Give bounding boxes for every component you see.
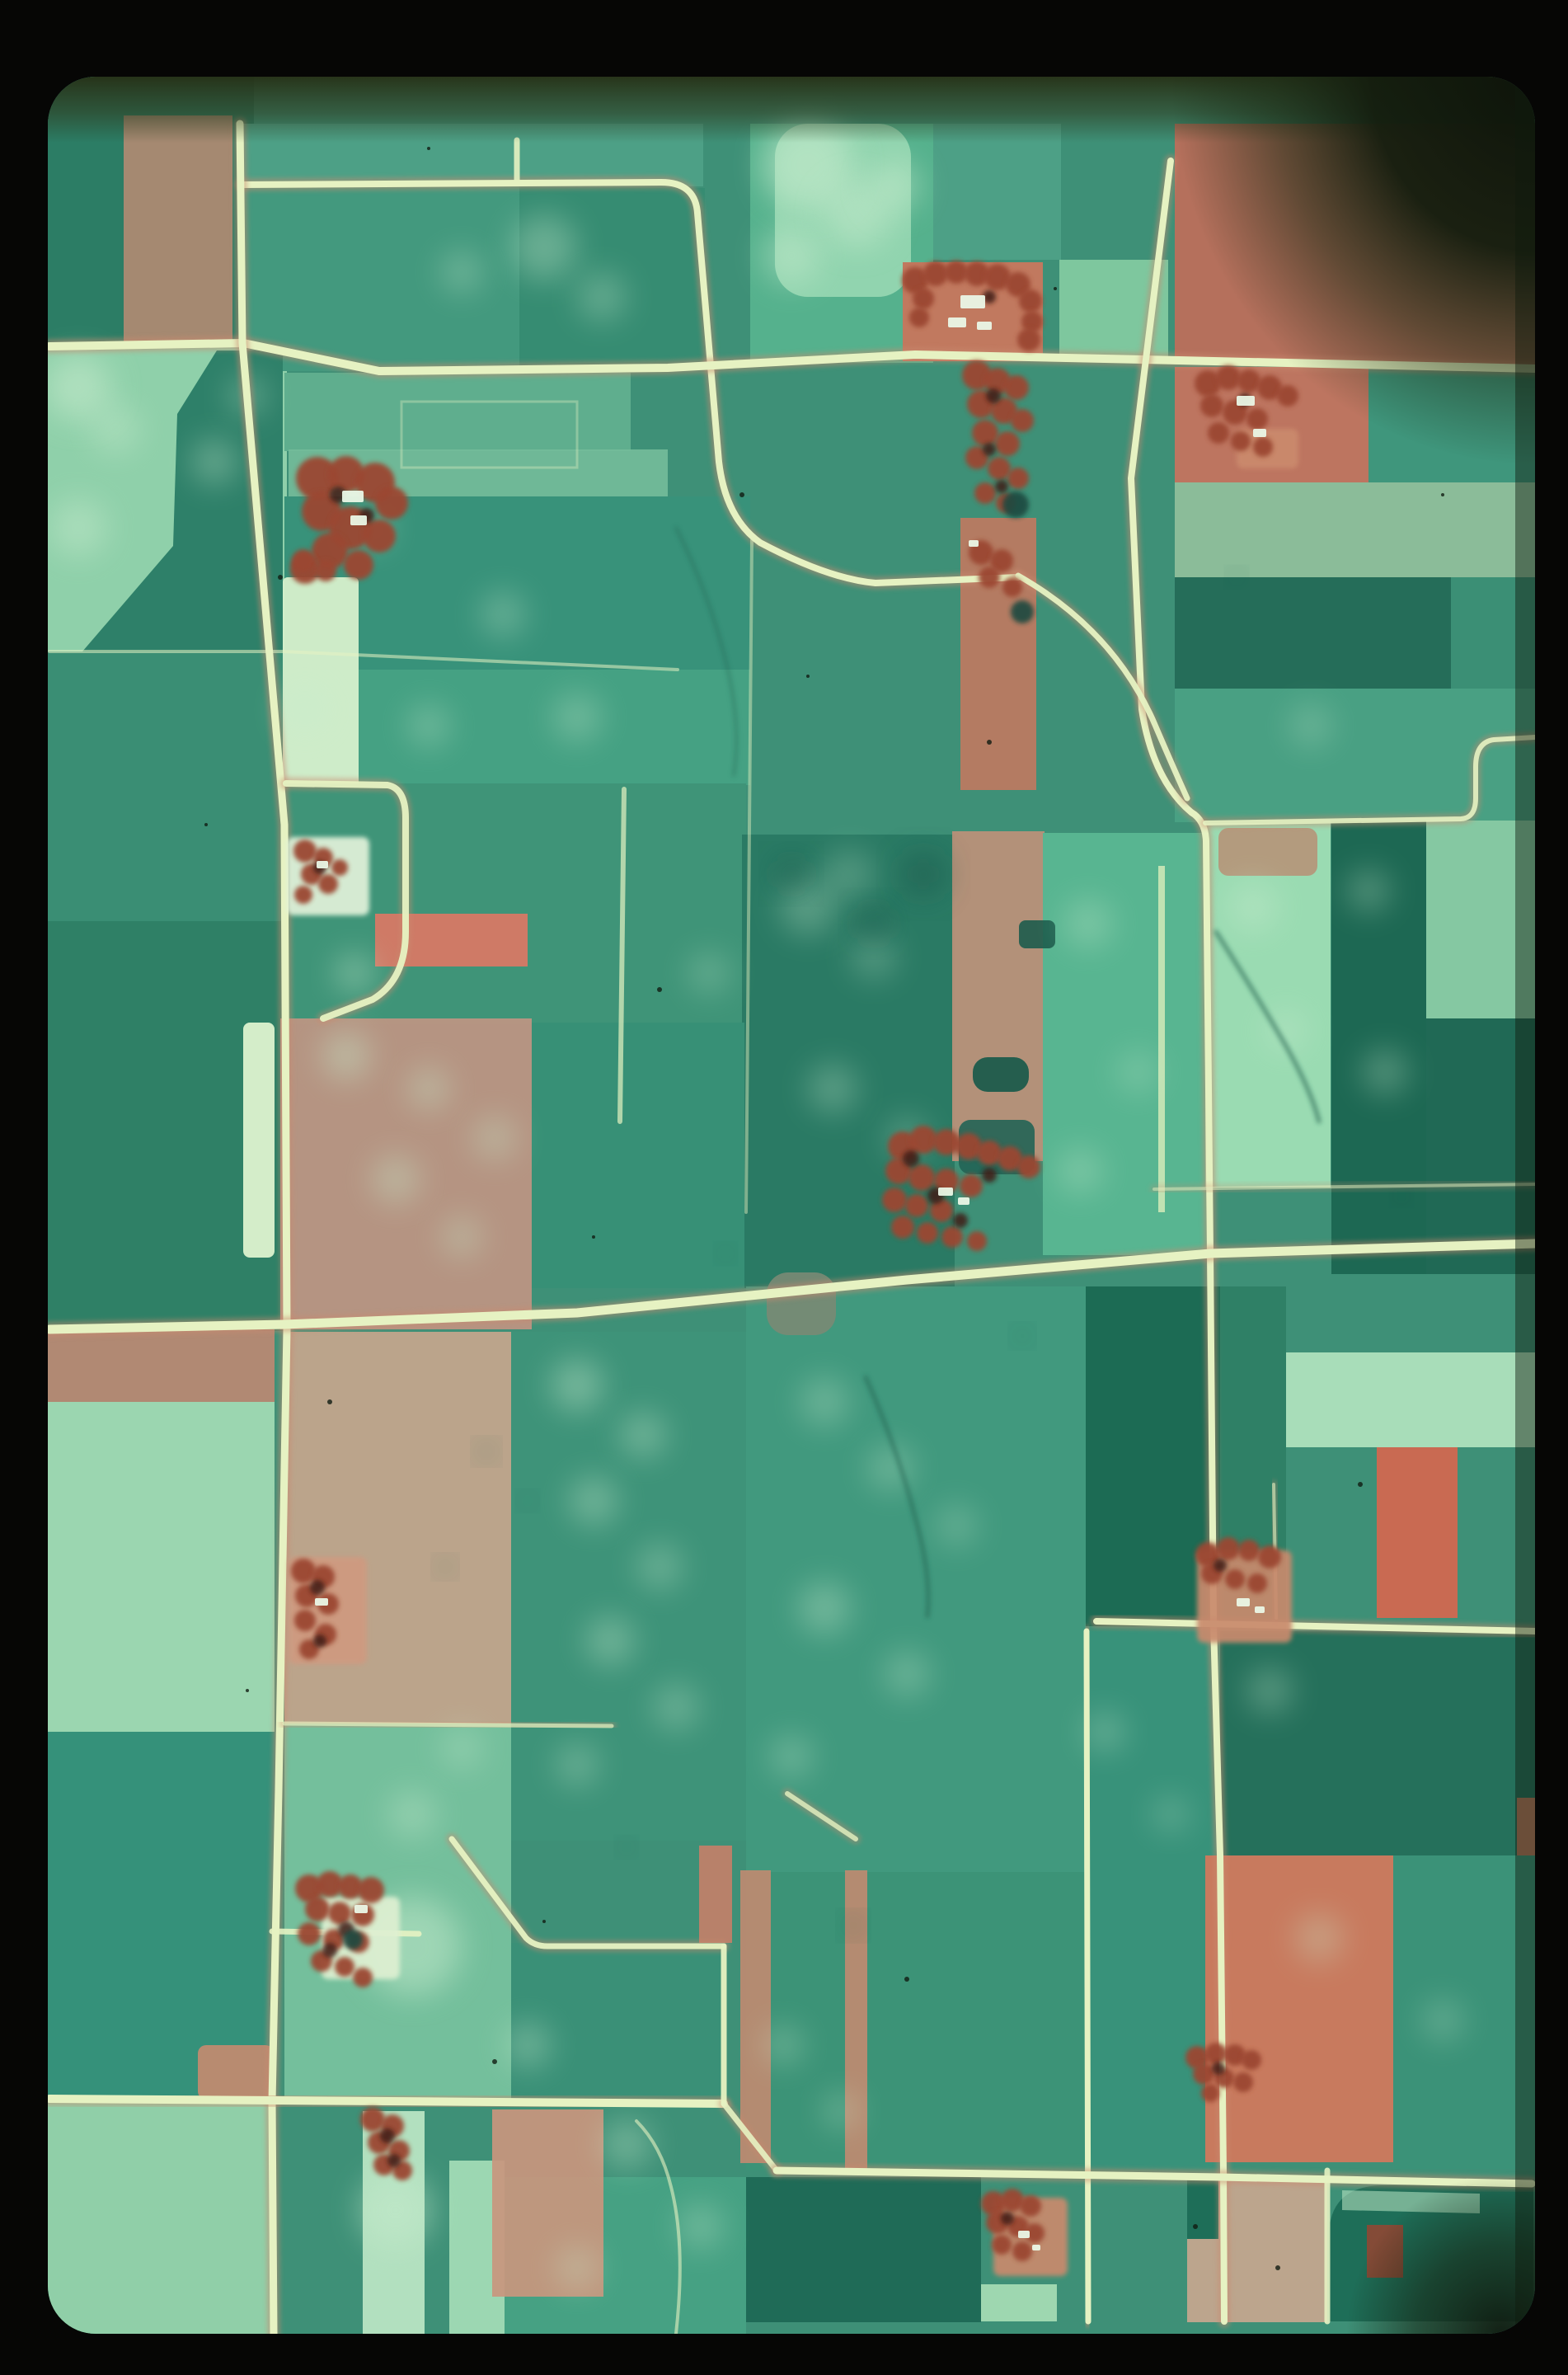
shelterbelt-trees (293, 839, 317, 863)
shelterbelt-trees (358, 1877, 384, 1903)
corner-vignette-bottom-right (1253, 2045, 1535, 2334)
tree-shadow (310, 1580, 325, 1595)
dark-soil-spot (621, 1841, 632, 1853)
light-soil-spot (1294, 1913, 1344, 1963)
dark-soil-spot (439, 1560, 452, 1573)
field-region (1205, 823, 1331, 1187)
dark-soil-spot (902, 853, 945, 896)
shelterbelt-trees (1201, 2084, 1219, 2102)
light-soil-spot (763, 227, 820, 285)
farm-building (1255, 1606, 1265, 1613)
tree-shadow (1214, 1559, 1227, 1572)
light-soil-spot (636, 1544, 683, 1590)
light-soil-spot (387, 1789, 437, 1839)
tree-shadow (982, 1168, 997, 1183)
farm-building (938, 1187, 953, 1196)
field-region (243, 1023, 275, 1258)
farm-building (317, 861, 328, 868)
tree-shadow (313, 1634, 326, 1648)
light-soil-spot (884, 1651, 930, 1697)
shelterbelt-trees (933, 1129, 960, 1155)
field-region (532, 1023, 744, 1288)
field-region (1218, 828, 1317, 876)
film-dust-speck (492, 2059, 497, 2064)
shelterbelt-trees (294, 886, 312, 904)
light-soil-spot (1362, 1049, 1408, 1095)
film-dust-speck (592, 1235, 595, 1239)
field-region (48, 1329, 275, 1408)
light-soil-spot (1421, 1999, 1464, 2042)
aerial-photo-slide (0, 0, 1568, 2375)
tree-shadow (953, 1213, 968, 1228)
film-dust-speck (904, 1977, 909, 1982)
shelterbelt-trees (1205, 2043, 1227, 2064)
field-region (1019, 920, 1055, 948)
dark-soil-spot (1396, 1190, 1407, 1202)
shelterbelt-trees (960, 1174, 983, 1197)
field-region (699, 1846, 732, 1943)
dark-soil-spot (845, 1917, 861, 1934)
farmstead-south-center (981, 2189, 1068, 2276)
light-soil-spot (191, 439, 237, 485)
shelterbelt-trees (909, 1126, 937, 1154)
shelterbelt-trees (331, 859, 348, 876)
light-soil-spot (91, 404, 140, 454)
light-soil-spot (505, 2022, 551, 2068)
farm-building (1032, 2245, 1040, 2250)
tree-shadow (387, 2154, 401, 2167)
shelterbelt-trees (318, 874, 338, 894)
light-soil-spot (688, 952, 730, 995)
shelterbelt-trees (913, 288, 934, 309)
road-segment (49, 2099, 724, 2104)
light-soil-spot (1246, 1667, 1293, 1714)
tree-shadow (903, 1150, 919, 1167)
farmstead-east (1195, 1537, 1292, 1643)
dark-soil-spot (479, 1444, 494, 1459)
field-region (746, 1286, 1086, 1874)
field-region (511, 1332, 746, 1841)
light-soil-spot (335, 953, 374, 993)
field-region (1158, 866, 1165, 1212)
film-dust-speck (278, 575, 283, 580)
field-region (198, 2045, 274, 2100)
field-region (1377, 1447, 1458, 1618)
film-dust-speck (987, 740, 992, 745)
light-soil-spot (440, 1727, 483, 1770)
light-soil-spot (1063, 899, 1113, 948)
light-soil-spot (407, 704, 450, 747)
film-dust-speck (327, 1399, 332, 1404)
light-soil-spot (371, 1155, 420, 1204)
field-region (1187, 2177, 1218, 2239)
field-region (1088, 1631, 1220, 2169)
shelterbelt-trees (909, 308, 929, 327)
farm-building (1018, 2231, 1030, 2238)
shelterbelt-trees (1258, 1545, 1281, 1568)
field-region (48, 1402, 275, 1732)
light-soil-spot (1228, 882, 1278, 932)
field-region (981, 2284, 1057, 2321)
farm-building (1237, 1598, 1250, 1606)
shelterbelt-trees (905, 1194, 928, 1217)
field-region (1286, 1352, 1535, 1447)
light-soil-spot (569, 1476, 618, 1526)
light-soil-spot (808, 1064, 857, 1113)
shelterbelt-trees (908, 1164, 935, 1191)
shelterbelt-trees (1247, 1573, 1267, 1593)
light-soil-spot (824, 849, 874, 899)
shelterbelt-trees (923, 261, 948, 286)
shelterbelt-trees (1193, 2063, 1214, 2085)
shelterbelt-trees (941, 1226, 963, 1248)
film-dust-speck (1193, 2224, 1198, 2229)
light-soil-spot (556, 2246, 599, 2289)
light-soil-spot (851, 934, 897, 980)
corner-vignette-top-right (948, 77, 1535, 703)
road-segment (1087, 1631, 1088, 2321)
light-soil-spot (770, 1735, 813, 1778)
shelterbelt-trees (967, 1231, 987, 1251)
light-soil-spot (620, 1412, 666, 1458)
shelterbelt-trees (353, 1968, 373, 1987)
field-region (973, 1057, 1029, 1092)
light-soil-spot (280, 684, 330, 734)
field-region (511, 1943, 724, 2101)
tree-shadow (322, 1943, 337, 1958)
film-dust-speck (204, 823, 208, 826)
shelterbelt-trees (1217, 1537, 1240, 1560)
light-soil-spot (823, 2093, 859, 2129)
light-soil-spot (359, 2173, 433, 2247)
shelterbelt-trees (298, 1922, 321, 1945)
light-soil-spot (322, 1031, 371, 1080)
shelterbelt-trees (1225, 1569, 1245, 1589)
film-dust-speck (806, 675, 810, 678)
light-soil-spot (440, 1216, 483, 1258)
film-dust-speck (657, 987, 662, 992)
field-region (48, 651, 289, 924)
light-soil-spot (935, 1504, 978, 1547)
farm-building (958, 1197, 969, 1205)
shelterbelt-trees (1012, 2241, 1032, 2261)
dark-soil-spot (857, 907, 890, 940)
film-dust-speck (542, 1920, 546, 1923)
light-soil-spot (440, 251, 483, 294)
film-dust-speck (739, 492, 744, 497)
shelterbelt-trees (1233, 2072, 1253, 2092)
shelterbelt-trees (891, 1216, 914, 1239)
farm-pond (343, 1930, 363, 1949)
light-soil-spot (678, 2203, 724, 2250)
light-soil-spot (552, 693, 602, 742)
shelterbelt-trees (292, 549, 315, 572)
field-region (124, 115, 232, 342)
shelterbelt-trees (1238, 1540, 1260, 1561)
light-soil-spot (1289, 704, 1332, 747)
field-region (284, 1332, 511, 1724)
light-soil-spot (798, 1582, 851, 1634)
film-edge-right-shade (1515, 77, 1535, 2334)
shelterbelt-trees (1017, 1155, 1040, 1178)
light-soil-spot (480, 591, 526, 637)
field-region (746, 2177, 981, 2322)
light-soil-spot (653, 1684, 699, 1730)
light-soil-spot (1153, 1796, 1189, 1832)
shelterbelt-trees (375, 487, 408, 520)
light-soil-spot (1116, 1051, 1159, 1093)
field-region (48, 2101, 275, 2336)
light-soil-spot (870, 161, 919, 210)
shelterbelt-trees (344, 550, 373, 580)
shelterbelt-trees (315, 560, 336, 581)
light-soil-spot (763, 2025, 803, 2065)
shelterbelt-trees (882, 1187, 907, 1212)
dark-soil-spot (777, 859, 806, 889)
field-region (740, 1870, 771, 2163)
light-soil-spot (577, 272, 627, 322)
light-soil-spot (551, 1359, 603, 1412)
light-soil-spot (472, 1115, 518, 1161)
shelterbelt-trees (1020, 2195, 1041, 2217)
light-soil-spot (49, 499, 107, 557)
shelterbelt-trees (294, 1610, 316, 1631)
field-region (284, 373, 631, 451)
field-region (1220, 1631, 1535, 1855)
field-region (283, 577, 359, 793)
farm-building (342, 491, 364, 502)
shelterbelt-trees (992, 2235, 1012, 2255)
light-soil-spot (1057, 1148, 1103, 1194)
light-soil-spot (800, 1377, 849, 1427)
shelterbelt-trees (363, 520, 396, 553)
tree-shadow (380, 2128, 395, 2143)
farmstead-west-lower (289, 1557, 367, 1664)
dark-soil-spot (1016, 1329, 1029, 1343)
farm-building (315, 1598, 328, 1606)
film-dust-speck (427, 147, 430, 150)
shelterbelt-trees (335, 1957, 354, 1977)
film-dust-speck (246, 1689, 249, 1692)
farm-building (354, 1905, 368, 1913)
slide-mount (0, 0, 1568, 2375)
dark-soil-spot (720, 1248, 731, 1259)
light-soil-spot (511, 214, 577, 280)
road-segment (284, 1724, 612, 1726)
shelterbelt-trees (305, 1897, 330, 1921)
dark-soil-spot (522, 1495, 533, 1507)
light-soil-spot (556, 1743, 599, 1786)
film-dust-speck (1358, 1482, 1363, 1487)
farm-building (350, 515, 367, 525)
shelterbelt-trees (328, 1902, 351, 1925)
field-region (742, 835, 955, 1288)
tree-shadow (1001, 2212, 1014, 2225)
light-soil-spot (585, 1616, 635, 1666)
light-soil-spot (407, 1067, 450, 1110)
farmstead-west (287, 837, 369, 915)
tree-shadow (1212, 2062, 1225, 2075)
field-region (746, 1872, 1086, 2170)
light-soil-spot (1347, 869, 1390, 912)
shelterbelt-trees (917, 1222, 938, 1244)
field-region (952, 831, 1045, 1161)
